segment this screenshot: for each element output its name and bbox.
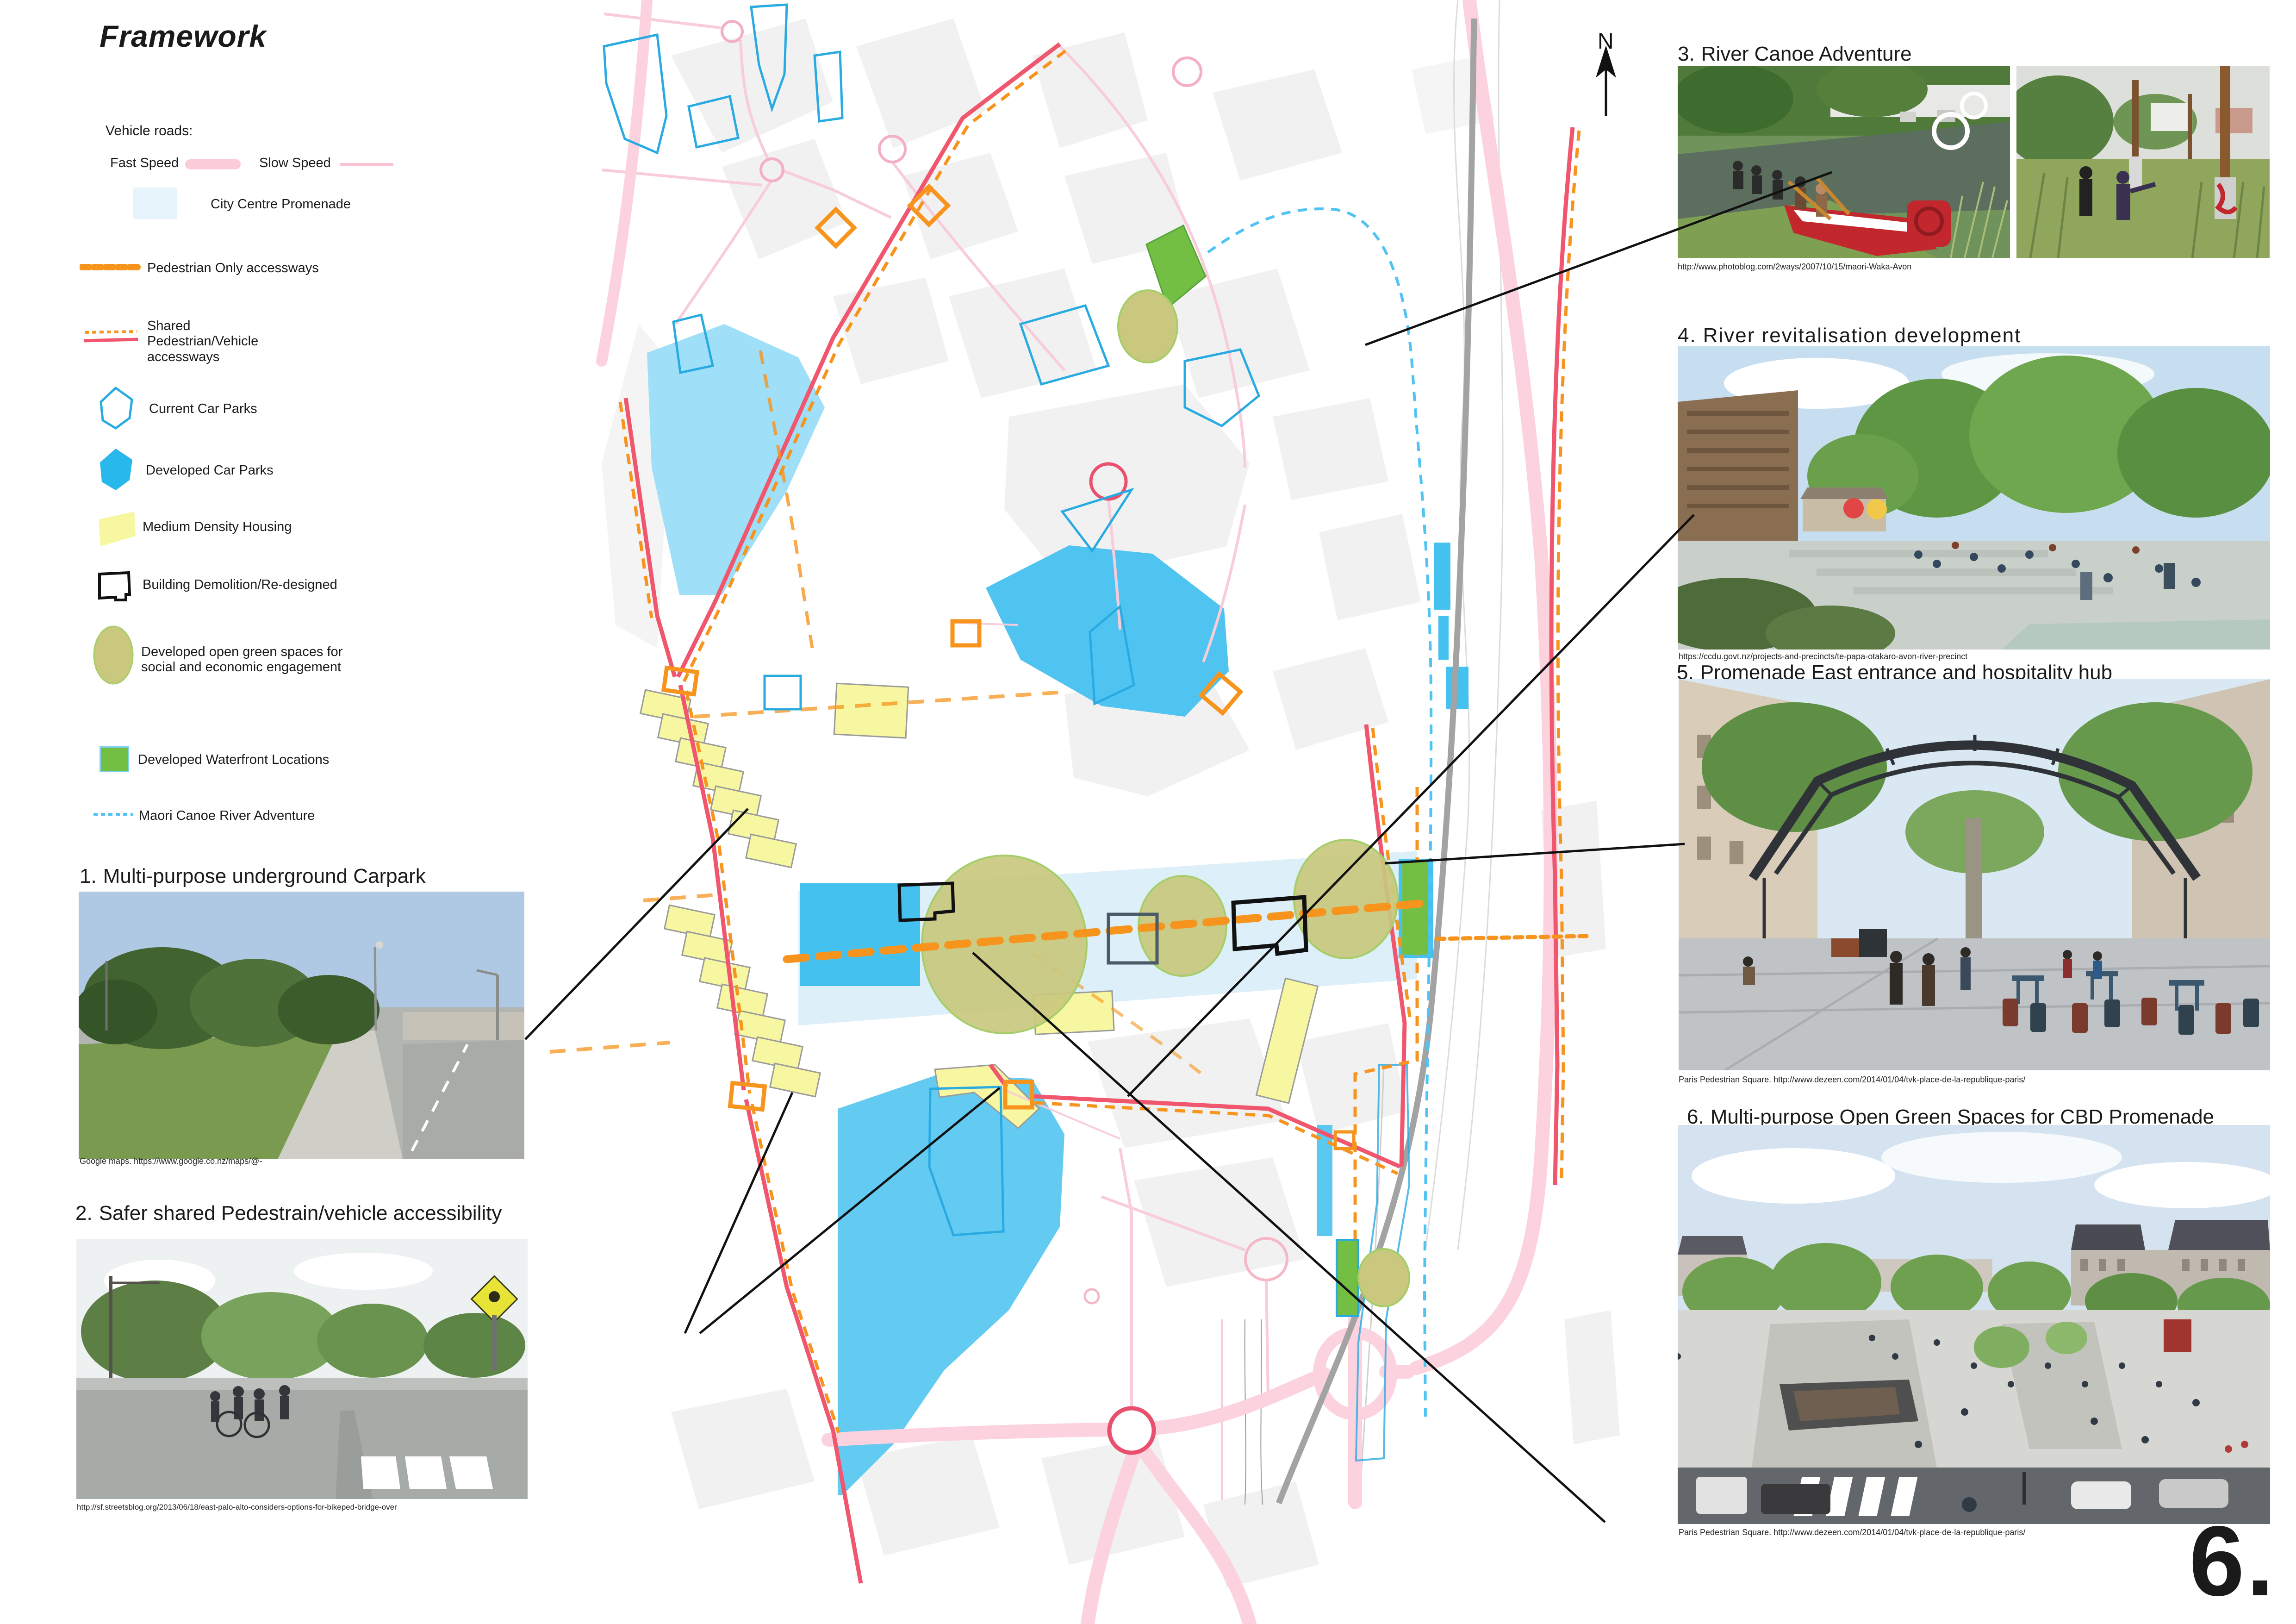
photo-5-credit: Paris Pedestrian Square. http://www.deze… [1679,1075,2025,1085]
developed-carparks-swatch [96,447,138,493]
maori-canoe-swatch [92,809,136,819]
shared-access-swatch [82,328,140,346]
photo-4-credit: https://ccdu.govt.nz/projects-and-precin… [1679,652,1967,662]
callout-4-heading: 4.River revitalisation development [1678,324,2021,347]
callout-1-heading: 1.Multi-purpose underground Carpark [80,865,426,888]
photo-1-credit: Google maps. https://www.google.co.nz/ma… [80,1156,262,1166]
legend-housing-label: Medium Density Housing [143,519,292,535]
photo-2-credit: http://sf.streetsblog.org/2013/06/18/eas… [77,1503,397,1512]
photo-3a-image [1678,66,2010,258]
legend-pedestrian-label: Pedestrian Only accessways [147,261,319,276]
photo-4-image [1678,346,2270,650]
photo-6-credit: Paris Pedestrian Square. http://www.deze… [1679,1528,2025,1537]
pedestrian-only-swatch [80,260,144,274]
photo-5-image [1679,679,2270,1070]
green-spaces-swatch [93,624,137,687]
promenade-swatch [133,187,177,219]
photo-3-credit: http://www.photoblog.com/2ways/2007/10/1… [1678,262,1911,272]
photo-2-image [76,1239,528,1499]
legend-waterfront-label: Developed Waterfront Locations [138,752,329,768]
photo-1-image [79,892,524,1159]
fast-speed-swatch [185,159,241,169]
legend-slow-label: Slow Speed [259,156,331,171]
current-carparks-swatch [97,386,139,432]
waterfront-swatch [100,746,129,772]
legend-developed-carparks-label: Developed Car Parks [146,463,274,478]
page-title: Framework [100,19,267,54]
legend-heading: Vehicle roads: [106,123,193,139]
green-circle-east [1294,840,1398,958]
page-number: 6. [2189,1504,2276,1618]
demolition-swatch [97,570,139,607]
legend-fast-label: Fast Speed [110,156,179,171]
legend-current-carparks-label: Current Car Parks [149,401,257,417]
legend-maori-label: Maori Canoe River Adventure [139,808,315,824]
framework-poster: N Framework Vehicle roads: Fast Speed Sl… [0,0,2296,1624]
callout-2-heading: 2.Safer shared Pedestrain/vehicle access… [75,1202,502,1225]
slow-speed-swatch [340,163,393,166]
north-arrow: N [1596,29,1616,116]
legend-shared-label: Shared Pedestrian/Vehicle accessways [147,319,300,365]
housing-swatch [95,509,139,549]
photo-6-image [1678,1125,2270,1524]
legend-green-spaces-label: Developed open green spaces for social a… [141,644,368,675]
legend-promenade-label: City Centre Promenade [211,197,351,212]
legend-demolition-label: Building Demolition/Re-designed [143,577,337,593]
photo-3b-image [2016,66,2270,258]
callout-3-heading: 3.River Canoe Adventure [1678,43,1912,66]
waterfront-south [1337,1240,1358,1316]
